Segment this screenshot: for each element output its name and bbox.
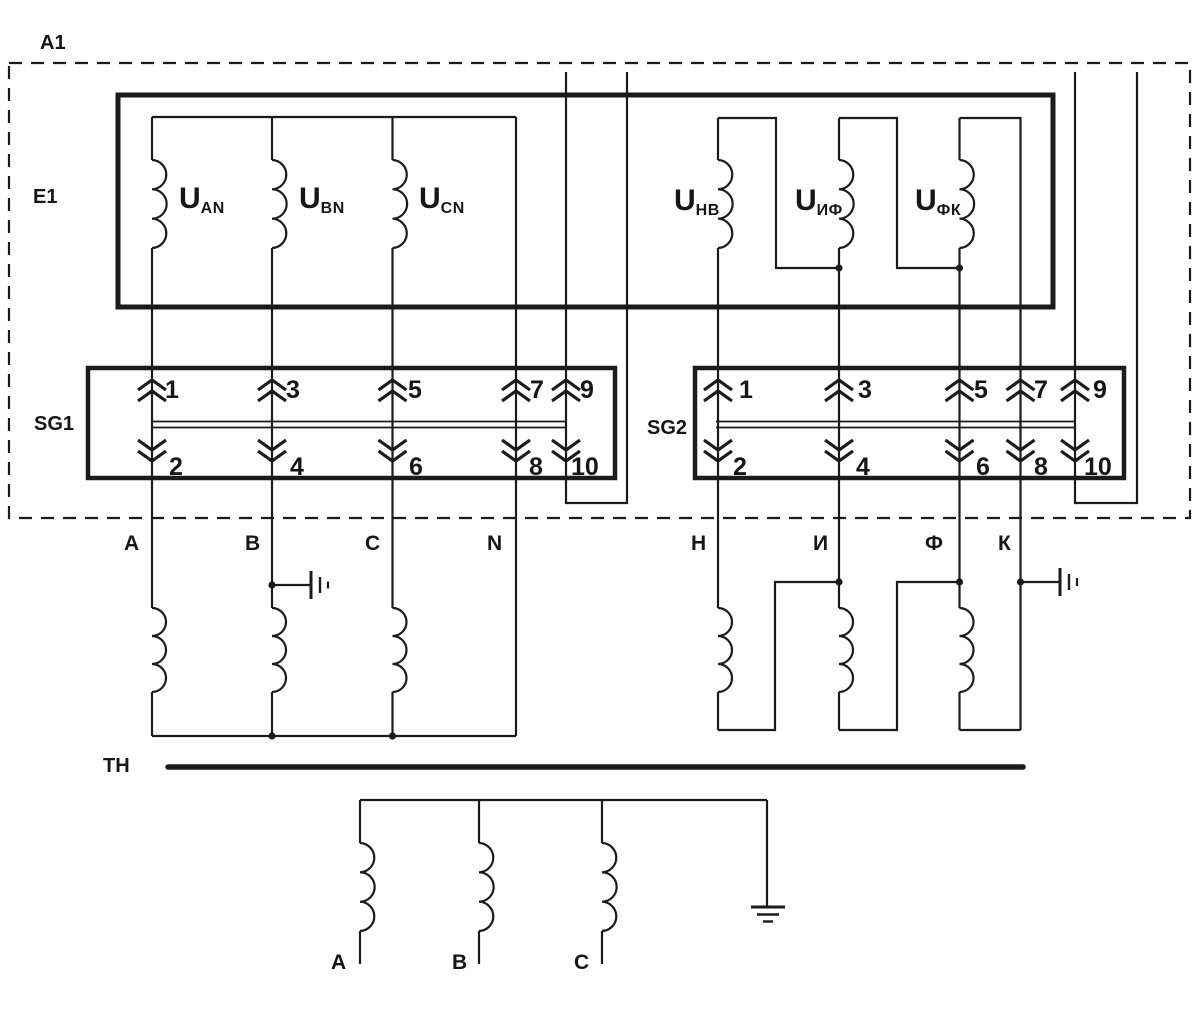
schematic: A1 E1 SG1 SG2 ТН UAN UBN UCN UНВ UИФ UФК… [0, 0, 1200, 1016]
sg1-terminal-number: 4 [290, 455, 304, 480]
conductor-label-n: N [487, 533, 502, 554]
junction-dot [268, 732, 275, 739]
junction-dot [1017, 578, 1024, 585]
coil-symbol [152, 160, 167, 248]
earth-symbol-primary [751, 907, 785, 922]
tn-label: ТН [103, 756, 130, 776]
primary-phase-label-b: В [452, 952, 467, 973]
sg2-terminal-number: 3 [858, 378, 872, 403]
module-label: A1 [40, 33, 66, 53]
terminal-arrows-sg2 [704, 380, 1089, 461]
coil-symbol [960, 608, 974, 692]
junction-dot [389, 732, 396, 739]
sg2-terminal-number: 8 [1034, 455, 1048, 480]
sg2-terminal-number: 9 [1093, 378, 1107, 403]
sg1-terminal-number: 8 [529, 455, 543, 480]
sg2-terminal-number: 6 [976, 455, 990, 480]
primary-phase-label-a: А [331, 952, 346, 973]
coil-symbol [718, 160, 733, 248]
junction-dots [268, 264, 1024, 739]
winding-label-ufk: UФК [915, 186, 961, 219]
a1-boundary-box [9, 63, 1190, 518]
coil-symbol [152, 608, 166, 692]
winding-label-ubn: UBN [299, 184, 345, 217]
e1-box [118, 95, 1053, 307]
sg1-strip [151, 422, 567, 428]
coil-symbol [393, 608, 407, 692]
sg2-terminal-number: 4 [856, 455, 870, 480]
winding-label-uif: UИФ [795, 186, 843, 219]
coil-symbol [718, 608, 732, 692]
terminal-arrows-sg1 [138, 380, 580, 461]
sg2-terminal-number: 1 [739, 378, 753, 403]
junction-dot [956, 578, 963, 585]
coil-symbols [152, 160, 974, 931]
junction-dot [268, 581, 275, 588]
conductor-label-h: Н [691, 533, 706, 554]
e1-label: E1 [33, 187, 57, 207]
coil-symbol [839, 608, 853, 692]
junction-dot [956, 264, 963, 271]
junction-dot [835, 264, 842, 271]
coil-symbol [393, 160, 408, 248]
ground-symbol-b [311, 571, 328, 599]
conductor-label-k: К [998, 533, 1011, 554]
winding-label-ucn: UCN [419, 184, 465, 217]
ground-symbol-k [1060, 568, 1077, 596]
sg2-terminal-number: 7 [1034, 378, 1048, 403]
coil-symbol [960, 160, 975, 248]
conductor-label-a: A [124, 533, 139, 554]
coil-symbol [272, 160, 287, 248]
winding-label-uan: UAN [179, 184, 225, 217]
sg2-terminal-number: 5 [974, 378, 988, 403]
conductor-label-b: B [245, 533, 260, 554]
sg2-terminal-number: 2 [733, 455, 747, 480]
schematic-canvas [0, 0, 1200, 1016]
coil-symbol [272, 608, 286, 692]
junction-dot [835, 578, 842, 585]
coil-symbol [479, 843, 494, 931]
coil-symbol [602, 843, 617, 931]
sg1-terminal-number: 1 [165, 378, 179, 403]
sg1-terminal-number: 10 [571, 455, 599, 480]
sg1-terminal-number: 5 [408, 378, 422, 403]
sg2-terminal-number: 10 [1084, 455, 1112, 480]
sg1-terminal-number: 9 [580, 378, 594, 403]
sg1-terminal-number: 2 [169, 455, 183, 480]
sg1-terminal-number: 7 [530, 378, 544, 403]
sg2-label: SG2 [647, 418, 687, 438]
sg1-terminal-number: 6 [409, 455, 423, 480]
sg2-box [695, 368, 1124, 478]
conductor-label-c: C [365, 533, 380, 554]
primary-phase-label-c: С [574, 952, 589, 973]
sg1-terminal-number: 3 [286, 378, 300, 403]
conductor-label-f: Ф [925, 533, 943, 554]
coil-symbol [360, 843, 375, 931]
sg1-label: SG1 [34, 414, 74, 434]
conductor-label-i: И [813, 533, 828, 554]
winding-label-unv: UНВ [674, 186, 720, 219]
sg2-strip [716, 422, 1076, 428]
